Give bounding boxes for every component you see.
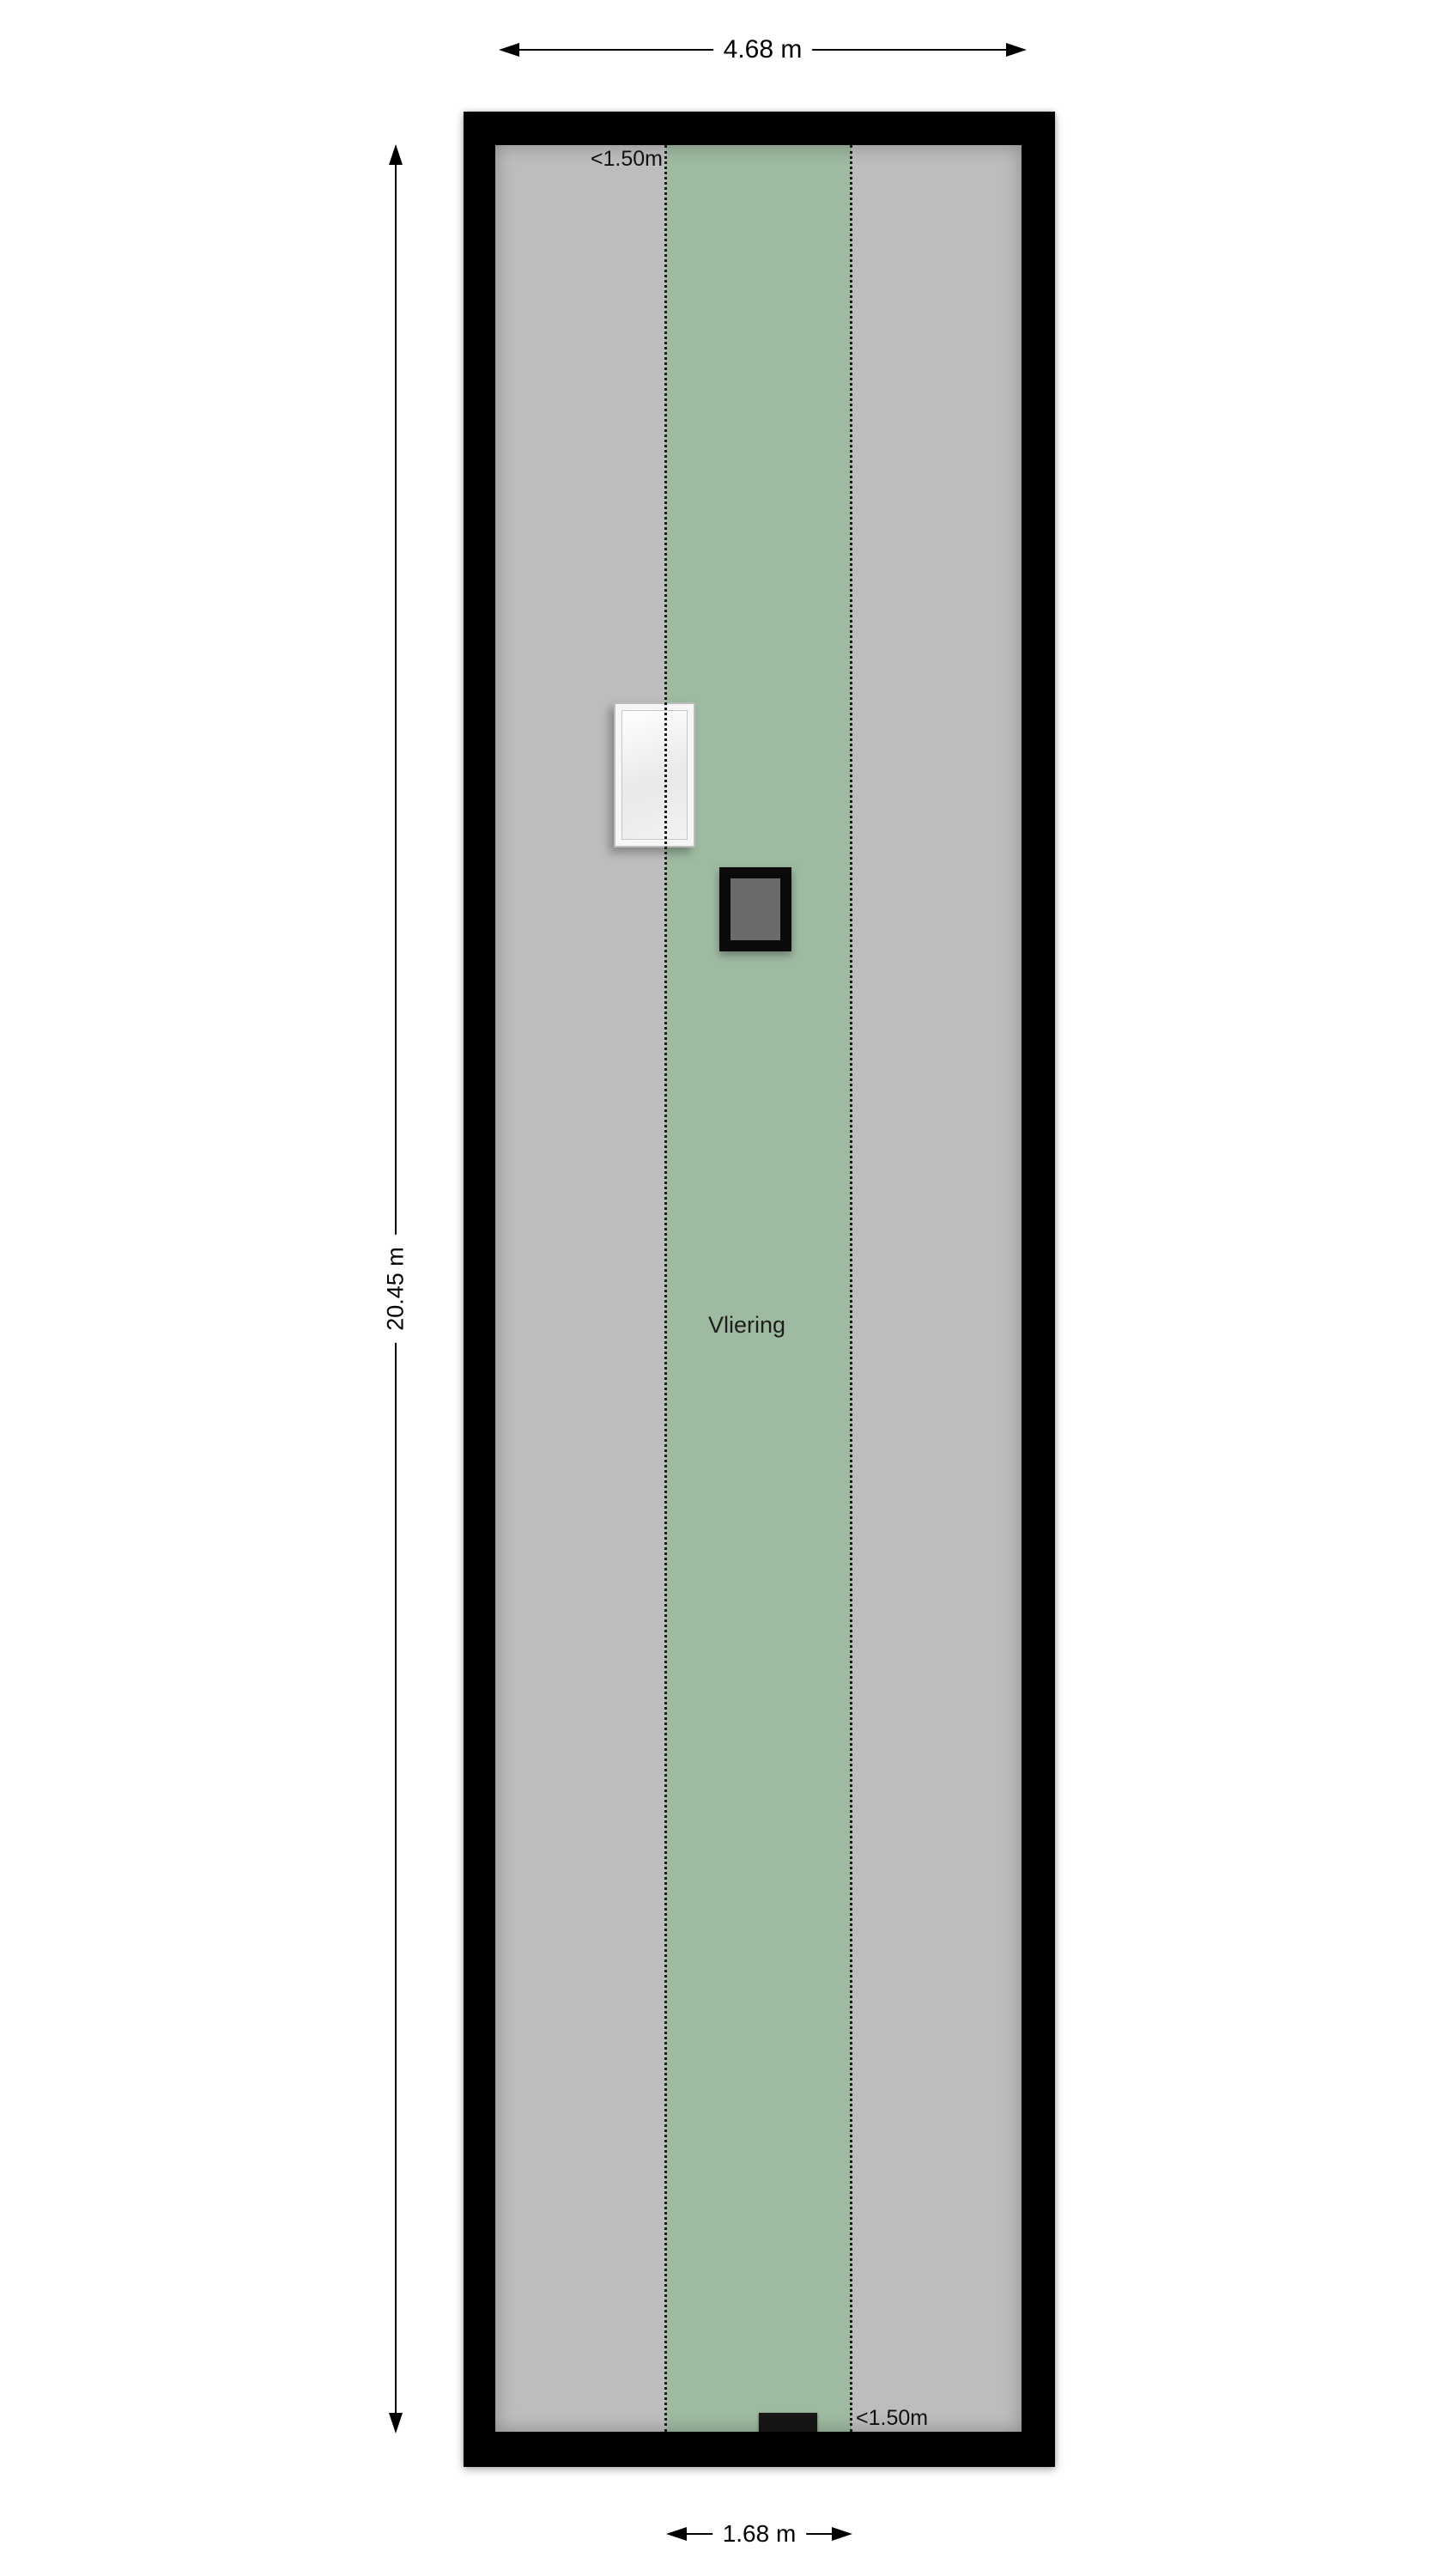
arrow-up-icon	[389, 144, 403, 165]
dimension-total-depth: 20.45 m	[379, 145, 413, 2433]
arrow-left-icon	[499, 43, 519, 57]
roof-window	[614, 702, 695, 848]
headroom-boundary-right	[850, 145, 852, 2432]
arrow-right-icon	[832, 2527, 852, 2541]
dimension-zone-width: 1.68 m	[667, 2517, 852, 2551]
dimension-total-width-label: 4.68 m	[713, 35, 813, 64]
arrow-left-icon	[666, 2527, 687, 2541]
vent	[759, 2413, 817, 2432]
room-label: Vliering	[661, 1312, 833, 1339]
dimension-total-width: 4.68 m	[500, 33, 1026, 67]
headroom-boundary-left	[664, 145, 667, 2432]
roof-window-pane	[621, 710, 688, 840]
headroom-zone	[666, 145, 852, 2432]
dimension-total-depth-label: 20.45 m	[383, 1235, 409, 1343]
arrow-down-icon	[389, 2413, 403, 2433]
clearance-label-top: <1.50m	[560, 147, 663, 172]
arrow-right-icon	[1006, 43, 1027, 57]
clearance-label-bottom: <1.50m	[856, 2406, 928, 2431]
dimension-zone-width-label: 1.68 m	[712, 2520, 807, 2548]
floorplan-canvas: 4.68 m 20.45 m <1.50m <1.50m Vliering 1.…	[0, 0, 1449, 2576]
chimney	[719, 867, 791, 951]
